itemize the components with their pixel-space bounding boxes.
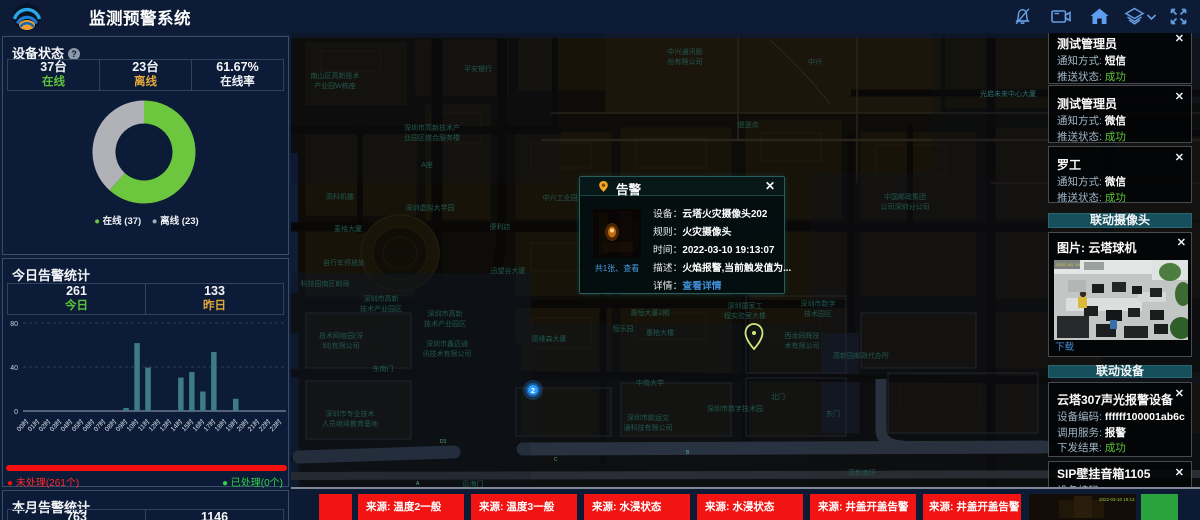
svg-text:C: C — [554, 457, 558, 463]
svg-text:份有限公司: 份有限公司 — [668, 57, 703, 66]
svg-text:2022-03-10: 2022-03-10 — [1056, 264, 1081, 268]
svg-text:深圳市鹏运交: 深圳市鹏运交 — [627, 413, 669, 422]
svg-text:光启未来中心大厦: 光启未来中心大厦 — [980, 89, 1036, 98]
svg-text:深圳市高新: 深圳市高新 — [364, 294, 399, 303]
svg-text:提送点: 提送点 — [738, 120, 759, 129]
svg-text:平安银行: 平安银行 — [464, 64, 492, 73]
svg-text:高科机楼: 高科机楼 — [326, 192, 354, 201]
svg-text:中南大学: 中南大学 — [636, 378, 664, 387]
svg-text:技术园区: 技术园区 — [804, 309, 832, 318]
svg-text:程实验室大楼: 程实验室大楼 — [724, 311, 766, 320]
svg-text:深圳市高新技术产: 深圳市高新技术产 — [404, 123, 460, 132]
svg-text:中兴通讯股: 中兴通讯股 — [668, 47, 703, 56]
svg-text:人员继续教育基地: 人员继续教育基地 — [322, 419, 378, 428]
svg-text:40: 40 — [10, 365, 18, 372]
svg-text:技术网络园(深: 技术网络园(深 — [319, 331, 363, 340]
svg-text:2022-03-10 19:13: 2022-03-10 19:13 — [1099, 497, 1135, 502]
svg-text:业园区综合服务楼: 业园区综合服务楼 — [404, 133, 460, 142]
svg-text:高新园邮政代办所: 高新园邮政代办所 — [833, 351, 889, 360]
svg-text:恒乐园: 恒乐园 — [613, 324, 634, 333]
svg-text:产业园W栋座: 产业园W栋座 — [314, 81, 356, 90]
svg-text:自行车停放处: 自行车停放处 — [323, 258, 365, 267]
svg-text:深圳市高新: 深圳市高新 — [428, 309, 463, 318]
svg-text:科技园南区邮局: 科技园南区邮局 — [301, 279, 350, 288]
svg-text:2: 2 — [531, 388, 535, 395]
svg-text:北门: 北门 — [771, 392, 785, 401]
svg-text:深圳市数字: 深圳市数字 — [801, 299, 836, 308]
svg-text:中兴: 中兴 — [808, 57, 822, 66]
svg-text:技术产业园区: 技术产业园区 — [424, 319, 466, 328]
svg-text:麦格大厦: 麦格大厦 — [334, 224, 362, 233]
svg-text:南山区高新技术: 南山区高新技术 — [311, 71, 360, 80]
svg-text:D1: D1 — [440, 439, 447, 445]
svg-text:深圳市专业技术: 深圳市专业技术 — [326, 409, 375, 418]
svg-text:术有限公司: 术有限公司 — [785, 341, 820, 350]
svg-text:高新南环: 高新南环 — [848, 468, 876, 477]
svg-text:0: 0 — [14, 409, 18, 416]
svg-text:公司深圳分公司: 公司深圳分公司 — [881, 202, 930, 211]
svg-text:东门: 东门 — [826, 409, 840, 418]
svg-text:通科技有限公司: 通科技有限公司 — [624, 423, 673, 432]
svg-text:深圳国家工: 深圳国家工 — [728, 301, 763, 310]
svg-text:深圳市鑫迈通: 深圳市鑫迈通 — [426, 339, 468, 348]
svg-text:A座: A座 — [421, 160, 433, 169]
svg-text:中兴工业园: 中兴工业园 — [543, 193, 578, 202]
svg-text:德维森大厦: 德维森大厦 — [532, 334, 567, 343]
svg-text:便利店: 便利店 — [490, 222, 511, 231]
svg-text:迅望谷大厦: 迅望谷大厦 — [491, 266, 526, 275]
svg-text:80: 80 — [10, 321, 18, 328]
svg-text:惠恒大厦2期: 惠恒大厦2期 — [631, 308, 670, 317]
svg-text:技术产业园区: 技术产业园区 — [360, 304, 402, 313]
svg-text:圳)有限公司: 圳)有限公司 — [322, 341, 359, 350]
svg-text:深圳虚拟大学园: 深圳虚拟大学园 — [406, 203, 455, 212]
svg-text:中国邮政集团: 中国邮政集团 — [884, 192, 926, 201]
svg-text:惠柏大楼: 惠柏大楼 — [646, 328, 674, 337]
svg-text:讯技术有限公司: 讯技术有限公司 — [423, 349, 472, 358]
svg-text:东南门: 东南门 — [373, 364, 394, 373]
svg-text:西龙同辉技: 西龙同辉技 — [785, 331, 820, 340]
svg-text:深圳市数字技术园: 深圳市数字技术园 — [707, 404, 763, 413]
